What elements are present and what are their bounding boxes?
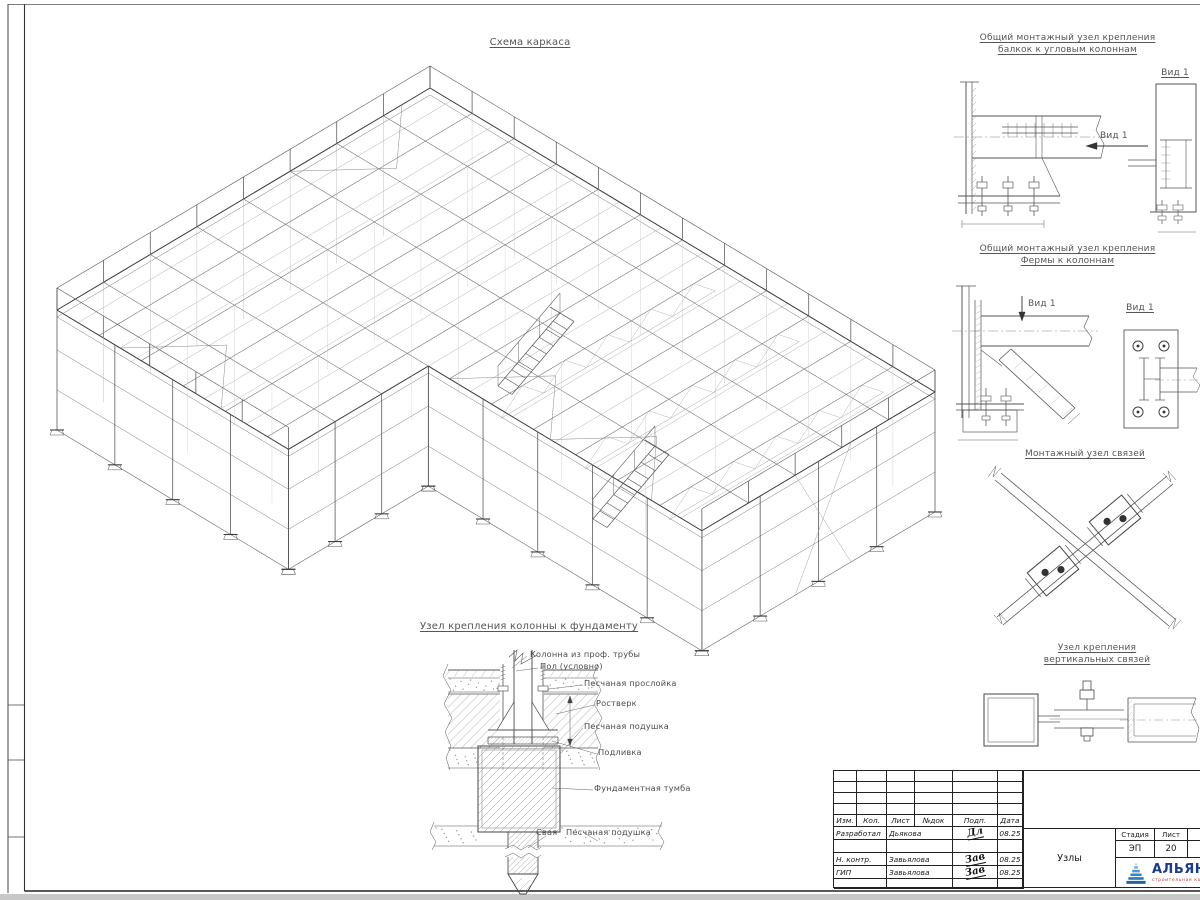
titleblock-cell <box>915 804 953 815</box>
titleblock-cell <box>953 793 998 804</box>
titleblock-cell <box>857 782 887 793</box>
drawing-sheet: { "colors":{"line":"#555555","logo_blue"… <box>0 0 1200 900</box>
detail2-view-arrow-label: Вид 1 <box>1028 299 1056 309</box>
detail-braces-drawing <box>988 466 1181 629</box>
titleblock-cell <box>887 793 915 804</box>
titleblock-header-kol: Кол. <box>857 815 887 827</box>
titleblock-row-role <box>834 840 887 853</box>
titleblock-cell <box>834 793 857 804</box>
titleblock-cell <box>834 782 857 793</box>
titleblock-cell <box>953 804 998 815</box>
titleblock-doc-name: Узлы <box>1024 829 1116 888</box>
foundation-label-column: Колонна из проф. трубы <box>530 650 640 659</box>
foundation-label-pile: Свая <box>536 828 557 837</box>
titleblock-row-date <box>998 879 1023 889</box>
titleblock-header-data: Дата <box>998 815 1023 827</box>
foundation-label-grout: Подливка <box>598 748 642 757</box>
stage-label: Стадия <box>1116 829 1155 841</box>
titleblock-row-role: Разработал <box>834 827 887 840</box>
titleblock-row-date: 08.25 <box>998 827 1023 840</box>
title-block: Изм. Кол. Лист №док Подп. Дата Разработа… <box>833 770 1200 888</box>
titleblock-row-date <box>998 840 1023 853</box>
titleblock-doc-code-cell <box>1024 771 1200 829</box>
signature: Дл <box>966 825 984 840</box>
titleblock-cell <box>857 771 887 782</box>
titleblock-cell <box>857 804 887 815</box>
detail1-view-arrow-label: Вид 1 <box>1100 131 1128 141</box>
titleblock-row-role: ГИП <box>834 866 887 879</box>
titleblock-cell <box>998 804 1023 815</box>
company-subtitle: строительная компания <box>1152 878 1200 883</box>
company-logo-icon <box>1124 861 1148 886</box>
titleblock-cell <box>834 804 857 815</box>
detail1-title-line1: Общий монтажный узел крепления <box>940 33 1195 43</box>
titleblock-cell <box>915 782 953 793</box>
titleblock-left-grid: Изм. Кол. Лист №док Подп. Дата Разработа… <box>834 771 1024 889</box>
titleblock-header-podp: Подп. <box>953 815 998 827</box>
detail1-view-label: Вид 1 <box>1150 68 1200 78</box>
foundation-label-grillage: Ростверк <box>596 699 637 708</box>
titleblock-row-signature: Зав <box>953 853 998 866</box>
main-view-title: Схема каркаса <box>430 37 630 49</box>
titleblock-row-name: Завьялова <box>887 853 953 866</box>
titleblock-row-date: 08.25 <box>998 853 1023 866</box>
detail1-title-line2: балкок к угловым колоннам <box>940 45 1195 55</box>
titleblock-cell <box>915 793 953 804</box>
titleblock-cell <box>953 782 998 793</box>
titleblock-header-izm: Изм. <box>834 815 857 827</box>
sheets-label: Листов <box>1188 829 1200 841</box>
foundation-label-pedestal: Фундаментная тумба <box>594 784 691 793</box>
detail3-title: Монтажный узел связей <box>985 449 1185 459</box>
titleblock-row-name <box>887 879 953 889</box>
titleblock-cell <box>857 793 887 804</box>
detail4-title-line2: вертикальных связей <box>1007 655 1187 665</box>
detail2-view-label: Вид 1 <box>1114 303 1166 313</box>
titleblock-cell <box>887 804 915 815</box>
titleblock-row-name: Дьякова <box>887 827 953 840</box>
titleblock-right: Узлы Стадия Лист Листов ЭП 20 2 <box>1024 771 1200 889</box>
titleblock-row-signature: Зав <box>953 866 998 879</box>
signature: Зав <box>964 864 986 880</box>
titleblock-cell <box>998 782 1023 793</box>
detail2-title-line2: Фермы к колоннам <box>940 256 1195 266</box>
titleblock-cell <box>834 771 857 782</box>
foundation-title: Узел крепления колонны к фундаменту <box>420 621 630 633</box>
titleblock-stage-grid: Стадия Лист Листов ЭП 20 2 А <box>1116 829 1200 888</box>
frame-isometric-drawing <box>50 66 942 656</box>
titleblock-row-name <box>887 840 953 853</box>
foundation-label-sand-cushion: Песчаная подушка <box>584 722 669 731</box>
titleblock-row-role <box>834 879 887 889</box>
detail2-title-line1: Общий монтажный узел крепления <box>940 244 1195 254</box>
titleblock-cell <box>887 771 915 782</box>
detail-corner-beam-drawing <box>954 82 1196 232</box>
titleblock-cell <box>998 793 1023 804</box>
titleblock-cell <box>998 771 1023 782</box>
titleblock-header-ndok: №док <box>915 815 953 827</box>
company-logo-cell: АЛЬЯНС строительная компания <box>1116 858 1200 888</box>
titleblock-row-role: Н. контр. <box>834 853 887 866</box>
sheet-label: Лист <box>1155 829 1188 841</box>
titleblock-row-date: 08.25 <box>998 866 1023 879</box>
stage-value: ЭП <box>1116 841 1155 858</box>
titleblock-header-list: Лист <box>887 815 915 827</box>
titleblock-cell <box>887 782 915 793</box>
titleblock-cell <box>915 771 953 782</box>
foundation-label-sand-layer: Песчаная прослойка <box>584 679 677 688</box>
detail-vertical-brace-drawing <box>984 681 1200 746</box>
foundation-label-floor: Пол (условно) <box>540 662 603 671</box>
titleblock-row-signature <box>953 879 998 889</box>
foundation-label-sand-cushion2: Песчаная подушка <box>566 828 651 837</box>
detail4-title-line1: Узел крепления <box>1007 643 1187 653</box>
titleblock-cell <box>953 771 998 782</box>
sheets-value: 2 <box>1188 841 1200 858</box>
titleblock-row-signature <box>953 840 998 853</box>
company-name: АЛЬЯНС <box>1152 863 1200 876</box>
sheet-value: 20 <box>1155 841 1188 858</box>
titleblock-row-name: Завьялова <box>887 866 953 879</box>
titleblock-row-signature: Дл <box>953 827 998 840</box>
